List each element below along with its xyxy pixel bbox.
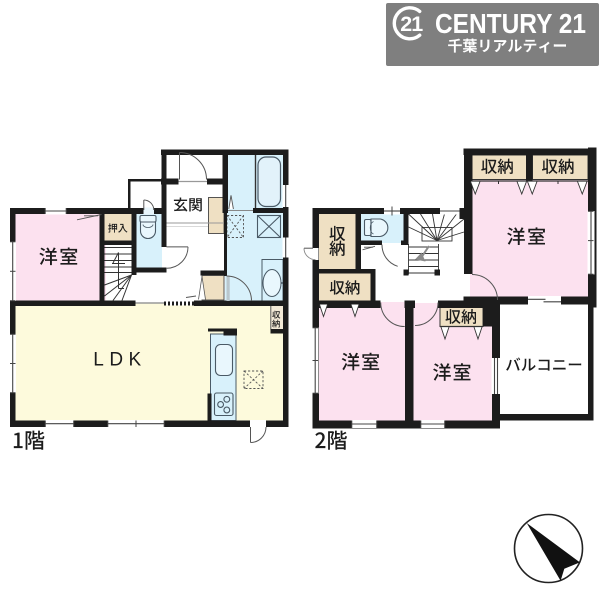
svg-text:LDK: LDK bbox=[93, 349, 146, 370]
svg-text:CENTURY 21: CENTURY 21 bbox=[435, 8, 586, 39]
svg-text:21: 21 bbox=[400, 12, 423, 36]
